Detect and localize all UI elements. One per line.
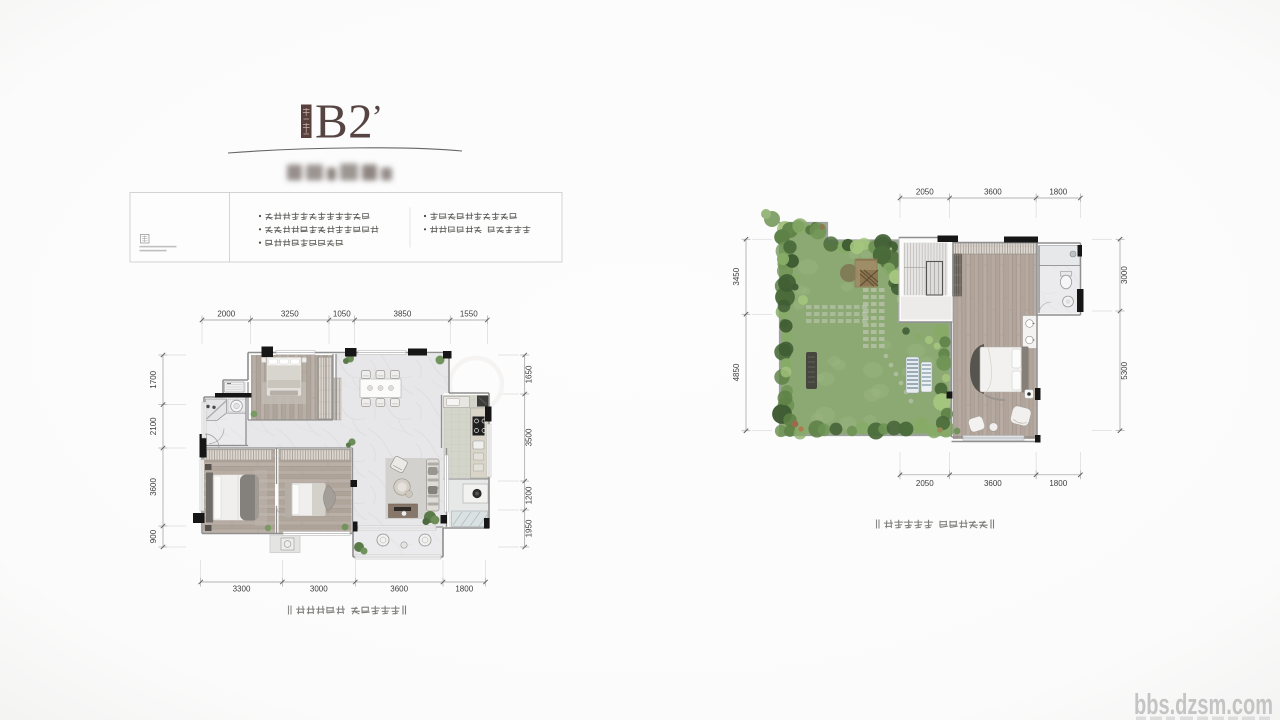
svg-text:2050: 2050 [916, 188, 934, 197]
svg-text:3000: 3000 [310, 585, 328, 594]
svg-text:1200: 1200 [525, 486, 534, 504]
svg-text:1800: 1800 [1049, 188, 1067, 197]
svg-text:bbs.dzsm.com: bbs.dzsm.com [1134, 689, 1273, 720]
svg-text:1650: 1650 [525, 365, 534, 383]
svg-text:1950: 1950 [525, 519, 534, 537]
svg-text:2100: 2100 [149, 417, 158, 435]
svg-text:2000: 2000 [217, 310, 235, 319]
svg-text:1700: 1700 [149, 370, 158, 388]
svg-text:’: ’ [372, 99, 383, 136]
svg-text:1050: 1050 [333, 310, 351, 319]
svg-text:2050: 2050 [916, 479, 934, 488]
svg-text:3300: 3300 [233, 585, 251, 594]
svg-text:1800: 1800 [455, 585, 473, 594]
svg-text:4850: 4850 [732, 363, 741, 381]
svg-text:3600: 3600 [984, 479, 1002, 488]
svg-text:3500: 3500 [525, 428, 534, 446]
svg-text:3000: 3000 [1120, 266, 1129, 284]
svg-text:1800: 1800 [1049, 479, 1067, 488]
svg-text:B2: B2 [315, 94, 373, 149]
svg-text:5300: 5300 [1120, 361, 1129, 379]
svg-text:3600: 3600 [149, 478, 158, 496]
svg-text:3850: 3850 [394, 310, 412, 319]
svg-text:3250: 3250 [281, 310, 299, 319]
svg-text:3600: 3600 [390, 585, 408, 594]
svg-text:3450: 3450 [732, 267, 741, 285]
svg-text:3600: 3600 [984, 188, 1002, 197]
svg-text:1550: 1550 [460, 310, 478, 319]
svg-text:900: 900 [149, 529, 158, 543]
